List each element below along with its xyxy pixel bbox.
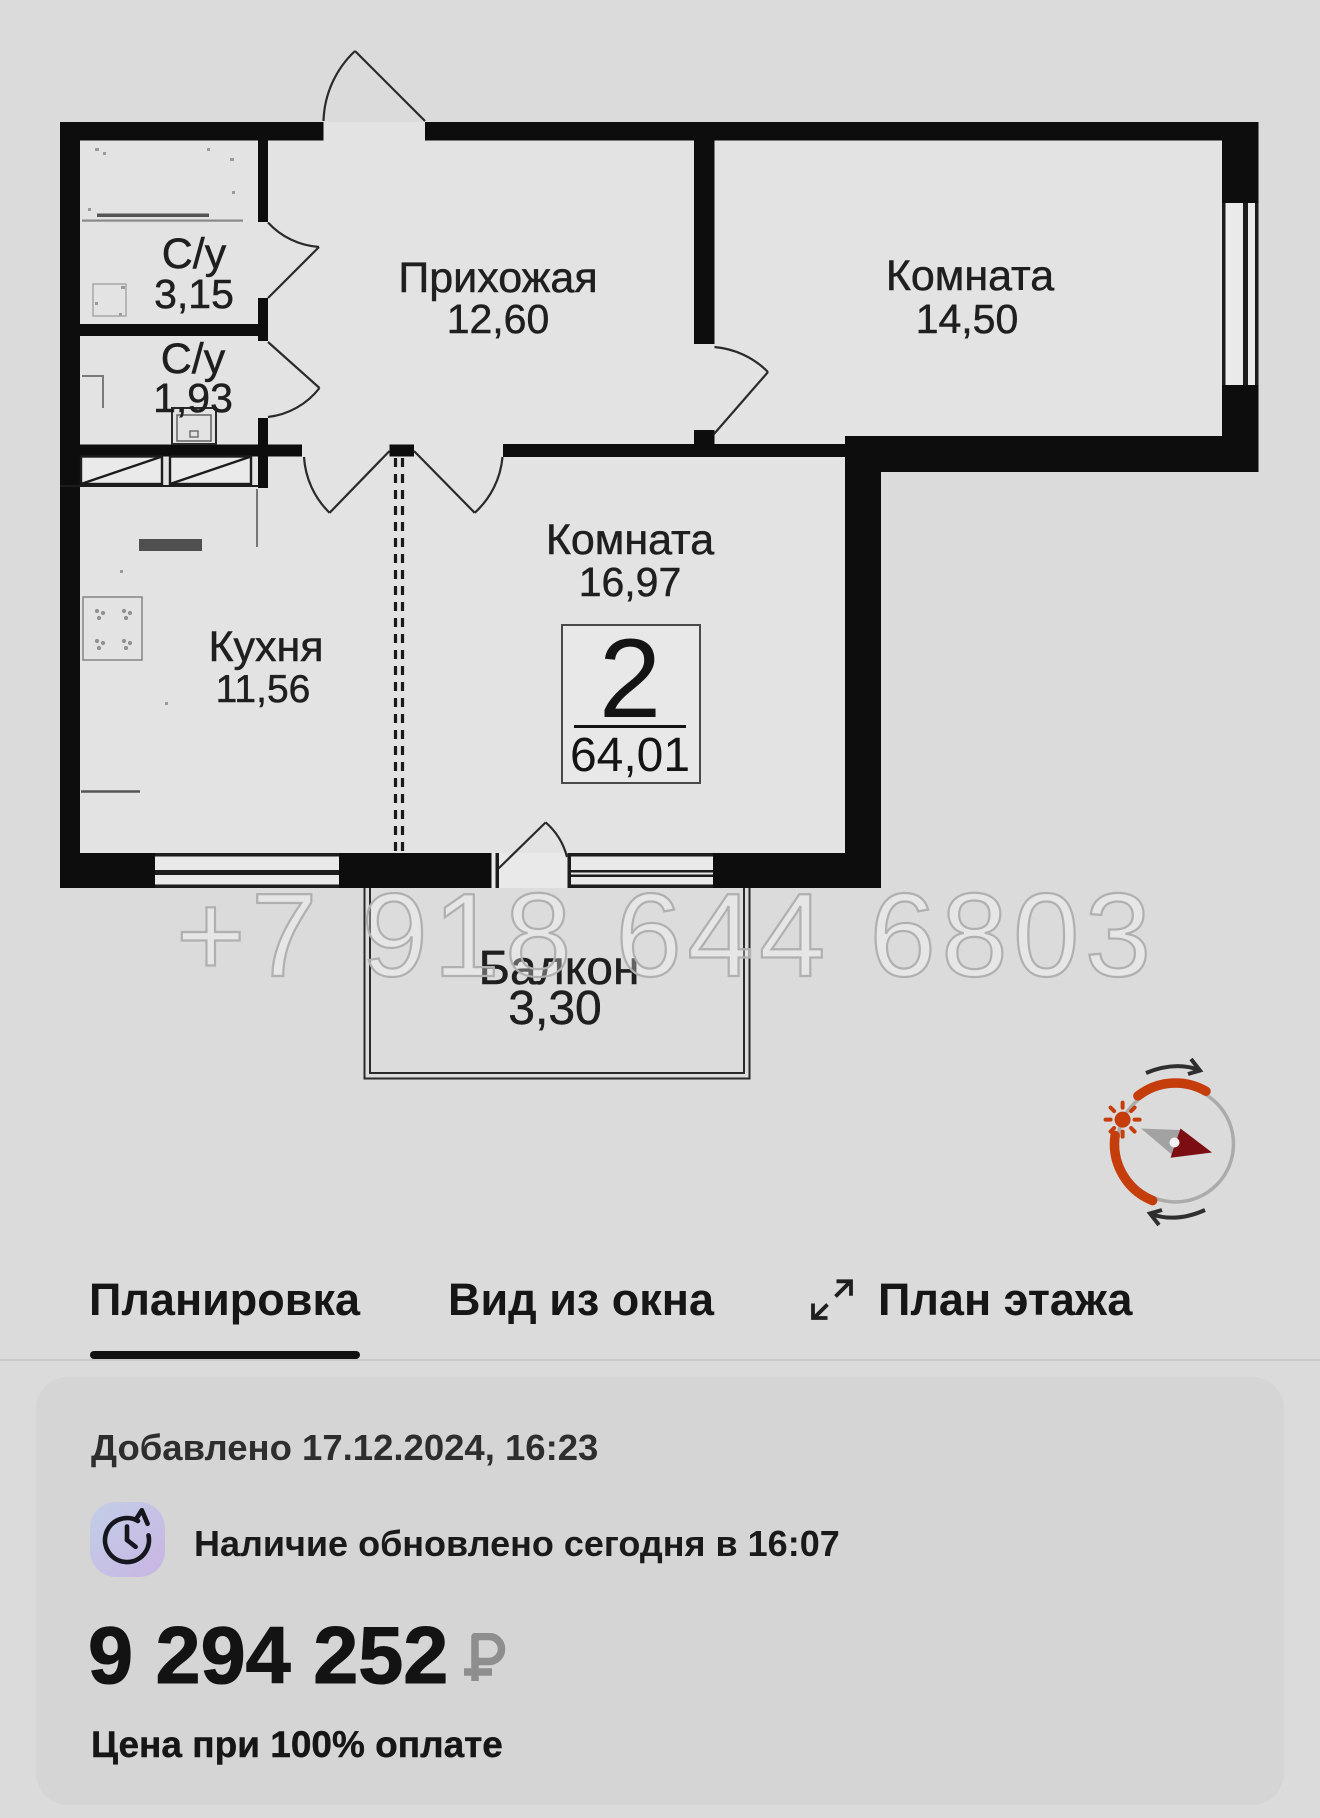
svg-text:11,56: 11,56	[216, 668, 311, 711]
svg-text:Комната: Комната	[886, 252, 1054, 300]
svg-text:2: 2	[599, 616, 661, 741]
svg-text:Комната: Комната	[546, 516, 714, 564]
svg-text:Кухня: Кухня	[208, 623, 323, 671]
svg-text:16,97: 16,97	[579, 559, 682, 605]
svg-text:+7 918 644 6803: +7 918 644 6803	[176, 869, 1157, 1002]
svg-text:14,50: 14,50	[916, 296, 1019, 342]
svg-text:12,60: 12,60	[447, 296, 550, 342]
svg-text:64,01: 64,01	[570, 729, 690, 782]
svg-text:Прихожая: Прихожая	[398, 254, 597, 302]
svg-text:3,15: 3,15	[154, 271, 234, 317]
svg-text:1,93: 1,93	[153, 375, 233, 421]
